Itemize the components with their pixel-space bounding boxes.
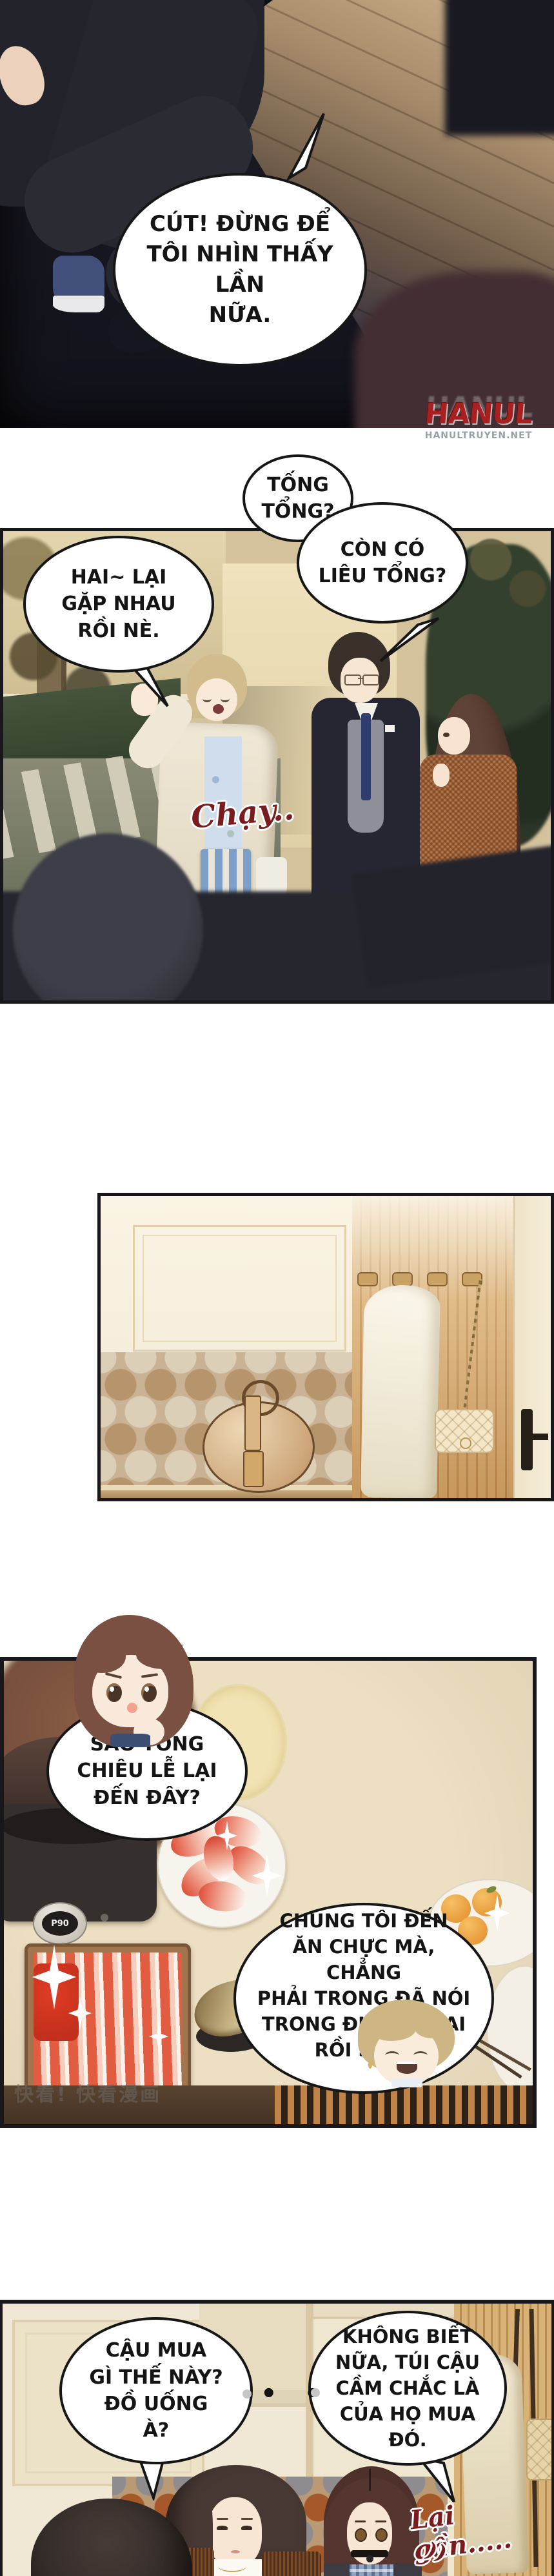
eye-left: [217, 2526, 228, 2530]
sneaker-sole: [53, 296, 104, 312]
cooker-label: P90: [51, 1919, 69, 1929]
brow-left: [217, 2518, 228, 2520]
eye-right: [241, 2526, 252, 2530]
blazer: [324, 2563, 350, 2576]
site-watermark: HANUL HANULTRUYEN.NET: [410, 398, 547, 441]
ghost-dot: [311, 2388, 320, 2397]
fringe-jacket-right: [262, 2551, 321, 2576]
suit-man-tie: [361, 713, 371, 800]
cooker-button: [101, 1914, 108, 1922]
suit-man-face: [341, 658, 379, 703]
bowl-right: [486, 1965, 537, 2094]
grin-mouth: [397, 2062, 417, 2074]
kuaikan-watermark: 快看! 快看漫画: [14, 2078, 161, 2107]
ghost-dot: [242, 2389, 252, 2399]
chibi-woman-nose: [127, 1703, 137, 1713]
quilted-bag-clasp: [460, 1437, 471, 1449]
brow-left: [355, 2520, 366, 2522]
center-woman-face: [208, 2497, 262, 2567]
hanging-coat: [361, 1284, 440, 1499]
glasses-right: [362, 674, 379, 685]
wall-frame-inner: [143, 1235, 337, 1342]
lieu-tong-bubble: CÒN CÓ LIÊU TỔNG?: [297, 502, 468, 624]
coat-hook-3: [427, 1272, 448, 1286]
eye-right: [375, 2528, 388, 2542]
comic-page: CÚT! ĐỪNG ĐỂ TÔI NHÌN THẤY LẦN NỮA. HANU…: [0, 0, 554, 2576]
cooker-knob: P90: [33, 1902, 87, 1945]
mouth: [231, 2550, 240, 2553]
hanging-bag: [526, 2419, 554, 2480]
site-url: HANULTRUYEN.NET: [410, 431, 547, 441]
chibi-woman-eye-left: [106, 1683, 122, 1702]
shout-bubble: CÚT! ĐỪNG ĐỂ TÔI NHÌN THẤY LẦN NỮA.: [113, 173, 367, 367]
cau-mua-bubble: CẬU MUA GÌ THẾ NÀY? ĐỒ UỐNG À?: [59, 2317, 253, 2464]
brow-right: [241, 2518, 253, 2520]
dark-corner: [445, 0, 554, 136]
glasses-left: [344, 674, 361, 685]
brow-right: [375, 2520, 386, 2522]
greeting-bubble: HAI~ LẠI GẶP NHAU RỒI NÈ.: [23, 536, 214, 673]
necklace: [218, 2561, 246, 2572]
tweed-woman-hand: [433, 764, 450, 787]
door-handle-bar: [529, 1434, 548, 1440]
eye-left: [355, 2528, 367, 2542]
waving-man-face: [196, 678, 237, 721]
glasses-bridge: [358, 678, 363, 679]
pocket-square: [385, 725, 395, 732]
chibi-man-head: [358, 2000, 455, 2089]
khong-biet-bubble: KHÔNG BIẾT NỮA, TÚI CẬU CẦM CHẮC LÀ CỦA …: [308, 2311, 507, 2466]
counter-cabinet: [101, 1490, 352, 1501]
choker: [351, 2550, 388, 2557]
right-woman-part-line: [369, 2469, 371, 2491]
table-edge-slats: [275, 2085, 537, 2128]
earring: [368, 2062, 372, 2069]
cooker-knob-face: P90: [42, 1911, 78, 1936]
round-bag-tag: [243, 1451, 264, 1487]
quilted-bag: [435, 1409, 494, 1453]
round-bag: [203, 1401, 315, 1493]
bow-collar: [391, 2078, 422, 2087]
drinks-crate: [201, 849, 251, 895]
counter-top: [101, 1485, 352, 1490]
door: [513, 1196, 554, 1498]
eye-glint: [144, 1687, 149, 1692]
happy-eye-right: [413, 2051, 428, 2060]
choker-pendant: [366, 2555, 373, 2562]
coat-hook-1: [357, 1272, 378, 1286]
chibi-woman-collar: [110, 1734, 150, 1747]
eye-glint: [110, 1687, 114, 1692]
wall-frame: [133, 1225, 346, 1352]
bubble-tail: [286, 111, 326, 181]
chibi-woman-eye-right: [141, 1683, 157, 1702]
site-logo: HANUL: [409, 398, 548, 431]
sneaker: [53, 256, 104, 312]
open-mouth: [213, 704, 224, 714]
happy-eye-left: [385, 2051, 399, 2060]
coat-hook-2: [392, 1272, 413, 1286]
round-bag-strap: [244, 1395, 261, 1451]
chibi-woman-head: [74, 1615, 193, 1747]
closed-eye-right: [221, 695, 230, 702]
panel-3-entryway: [97, 1193, 554, 1501]
tweed-woman-face: [438, 717, 470, 755]
closed-eye-left: [203, 695, 212, 702]
eye: [443, 733, 450, 737]
